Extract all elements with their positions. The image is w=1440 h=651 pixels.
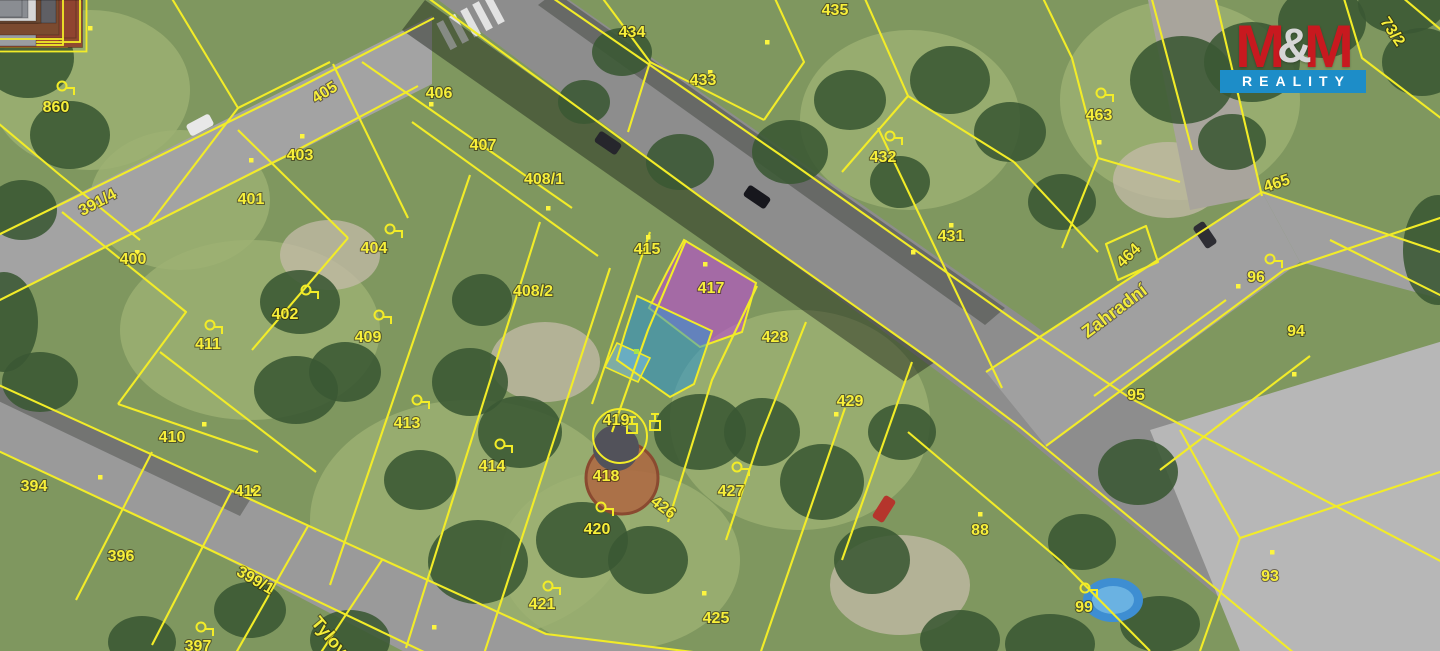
logo-ampersand: & <box>1277 25 1309 68</box>
parcel-label-410: 410 <box>159 429 186 446</box>
building-dot <box>702 591 707 596</box>
logo-m-left: M <box>1235 20 1282 74</box>
parcel-label-427: 427 <box>718 483 745 500</box>
svg-text:400: 400 <box>120 251 147 268</box>
svg-text:401: 401 <box>238 191 265 208</box>
parcel-label-94: 94 <box>1287 323 1305 340</box>
building-dot <box>429 102 434 107</box>
logo-reality-bar: REALITY <box>1220 70 1366 93</box>
parcel-label-415: 415 <box>634 241 661 258</box>
svg-text:433: 433 <box>690 72 717 89</box>
parcel-label-435: 435 <box>822 2 849 19</box>
parcel-label-420: 420 <box>584 521 611 538</box>
building-dot <box>300 134 305 139</box>
parcel-label-429: 429 <box>837 393 864 410</box>
svg-text:96: 96 <box>1247 269 1265 286</box>
building-dot <box>1270 550 1275 555</box>
parcel-label-417: 417 <box>698 280 725 297</box>
parcel-label-93: 93 <box>1261 568 1279 585</box>
parcel-label-434: 434 <box>619 24 646 41</box>
parcel-label-407: 407 <box>470 137 497 154</box>
svg-text:415: 415 <box>634 241 661 258</box>
parcel-label-421: 421 <box>529 596 556 613</box>
svg-text:402: 402 <box>272 306 299 323</box>
parcel-label-397: 397 <box>185 638 212 651</box>
building-dot <box>978 512 983 517</box>
svg-text:412: 412 <box>235 483 262 500</box>
svg-text:394: 394 <box>21 478 48 495</box>
parcel-label-419: 419 <box>603 412 630 429</box>
svg-text:404: 404 <box>361 240 388 257</box>
map-render: 860391/440540340140040241140440940640740… <box>0 0 1440 651</box>
svg-text:408/2: 408/2 <box>513 283 553 300</box>
parcel-label-413: 413 <box>394 415 421 432</box>
parcel-label-418: 418 <box>593 468 620 485</box>
parcel-label-396: 396 <box>108 548 135 565</box>
building-dot <box>1292 372 1297 377</box>
building-dot <box>834 412 839 417</box>
svg-text:418: 418 <box>593 468 620 485</box>
parcel-label-414: 414 <box>479 458 506 475</box>
parcel-label-408-1: 408/1 <box>524 171 564 188</box>
svg-text:429: 429 <box>837 393 864 410</box>
parcel-label-95: 95 <box>1127 387 1145 404</box>
parcel-label-96: 96 <box>1247 269 1265 286</box>
svg-text:93: 93 <box>1261 568 1279 585</box>
svg-text:406: 406 <box>426 85 453 102</box>
building-dot <box>546 206 551 211</box>
building-dot <box>765 40 770 45</box>
svg-text:407: 407 <box>470 137 497 154</box>
parcel-label-99: 99 <box>1075 599 1093 616</box>
parcel-label-408-2: 408/2 <box>513 283 553 300</box>
parcel-label-860: 860 <box>43 99 70 116</box>
building-dot <box>88 26 93 31</box>
svg-text:425: 425 <box>703 610 730 627</box>
parcel-label-463: 463 <box>1086 107 1113 124</box>
svg-text:397: 397 <box>185 638 212 651</box>
svg-text:428: 428 <box>762 329 789 346</box>
parcel-label-402: 402 <box>272 306 299 323</box>
parcel-label-400: 400 <box>120 251 147 268</box>
svg-text:860: 860 <box>43 99 70 116</box>
svg-text:94: 94 <box>1287 323 1305 340</box>
svg-text:409: 409 <box>355 329 382 346</box>
logo-mm-text: M & M <box>1220 20 1366 74</box>
building-dot <box>98 475 103 480</box>
parcel-label-406: 406 <box>426 85 453 102</box>
svg-text:408/1: 408/1 <box>524 171 564 188</box>
svg-text:435: 435 <box>822 2 849 19</box>
parcel-label-411: 411 <box>195 336 221 353</box>
building <box>0 0 22 17</box>
svg-text:95: 95 <box>1127 387 1145 404</box>
mm-reality-logo: M & M REALITY <box>1220 20 1366 93</box>
svg-text:434: 434 <box>619 24 646 41</box>
logo-m-right: M <box>1304 20 1351 74</box>
building-dot <box>249 158 254 163</box>
svg-text:432: 432 <box>870 149 897 166</box>
svg-text:396: 396 <box>108 548 135 565</box>
building-dot <box>911 250 916 255</box>
svg-text:417: 417 <box>698 280 725 297</box>
parcel-label-88: 88 <box>971 522 989 539</box>
building-dot <box>646 235 651 240</box>
svg-text:419: 419 <box>603 412 630 429</box>
svg-text:427: 427 <box>718 483 745 500</box>
parcel-label-432: 432 <box>870 149 897 166</box>
svg-text:463: 463 <box>1086 107 1113 124</box>
parcel-label-404: 404 <box>361 240 388 257</box>
svg-text:410: 410 <box>159 429 186 446</box>
svg-text:413: 413 <box>394 415 421 432</box>
svg-text:99: 99 <box>1075 599 1093 616</box>
parcel-label-428: 428 <box>762 329 789 346</box>
building-dot <box>949 223 954 228</box>
cadastral-map[interactable]: 860391/440540340140040241140440940640740… <box>0 0 1440 651</box>
building-dot <box>1097 140 1102 145</box>
svg-text:411: 411 <box>195 336 221 353</box>
svg-text:88: 88 <box>971 522 989 539</box>
parcel-label-425: 425 <box>703 610 730 627</box>
building-dot <box>1236 284 1241 289</box>
building-dot <box>432 625 437 630</box>
parcel-label-412: 412 <box>235 483 262 500</box>
svg-text:414: 414 <box>479 458 506 475</box>
parcel-label-403: 403 <box>287 147 314 164</box>
svg-text:420: 420 <box>584 521 611 538</box>
building-dot <box>202 422 207 427</box>
svg-text:403: 403 <box>287 147 314 164</box>
parcel-label-401: 401 <box>238 191 265 208</box>
svg-text:421: 421 <box>529 596 556 613</box>
parcel-label-394: 394 <box>21 478 48 495</box>
parcel-label-431: 431 <box>938 228 965 245</box>
building-dot <box>703 262 708 267</box>
svg-text:431: 431 <box>938 228 965 245</box>
parcel-label-433: 433 <box>690 72 717 89</box>
parcel-label-409: 409 <box>355 329 382 346</box>
